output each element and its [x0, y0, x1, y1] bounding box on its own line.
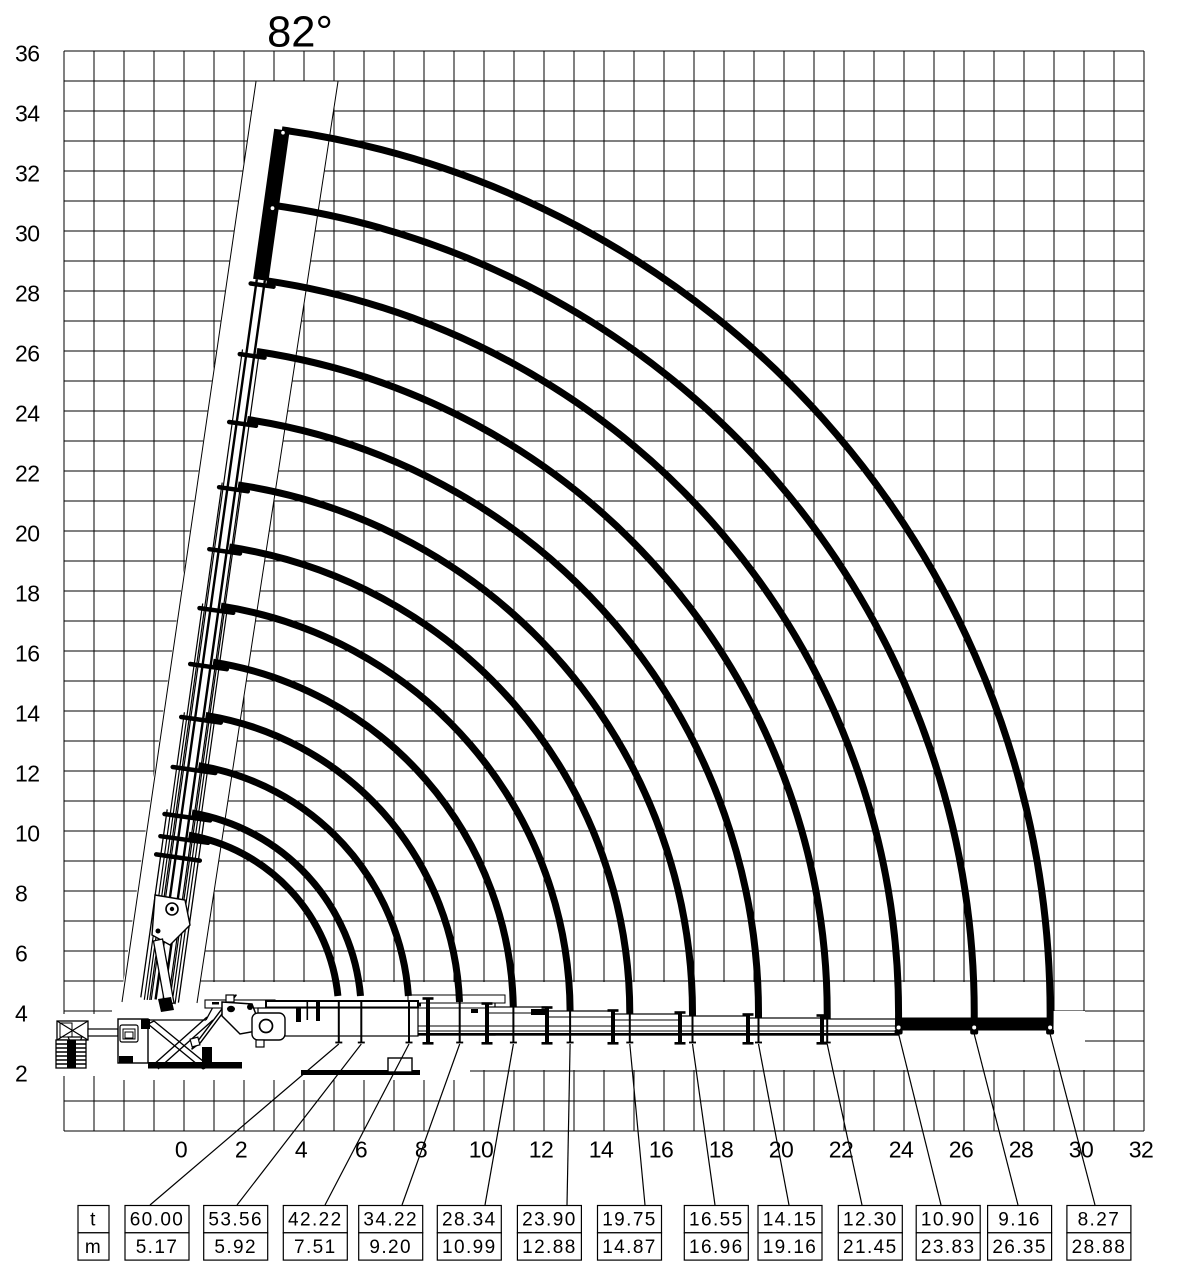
svg-text:26: 26 — [949, 1137, 974, 1163]
svg-text:6: 6 — [15, 941, 27, 967]
svg-text:8: 8 — [415, 1137, 427, 1163]
svg-text:0: 0 — [175, 1137, 187, 1163]
svg-text:16: 16 — [15, 641, 40, 667]
svg-text:5.92: 5.92 — [214, 1237, 257, 1258]
svg-text:10.99: 10.99 — [442, 1237, 497, 1258]
svg-text:12: 12 — [529, 1137, 554, 1163]
svg-text:24: 24 — [889, 1137, 914, 1163]
svg-text:16: 16 — [649, 1137, 674, 1163]
svg-text:8: 8 — [15, 881, 27, 907]
svg-text:12: 12 — [15, 761, 40, 787]
svg-text:14.87: 14.87 — [602, 1237, 657, 1258]
svg-text:8.27: 8.27 — [1078, 1210, 1121, 1231]
svg-text:28: 28 — [1009, 1137, 1034, 1163]
svg-text:26: 26 — [15, 341, 40, 367]
svg-text:20: 20 — [769, 1137, 794, 1163]
svg-text:m: m — [85, 1237, 102, 1258]
svg-text:9.20: 9.20 — [369, 1237, 412, 1258]
svg-text:14: 14 — [15, 701, 40, 727]
svg-text:14.15: 14.15 — [763, 1210, 818, 1231]
svg-text:18: 18 — [709, 1137, 734, 1163]
svg-text:30: 30 — [15, 221, 40, 247]
svg-text:10: 10 — [469, 1137, 494, 1163]
svg-text:34: 34 — [15, 101, 40, 127]
svg-text:4: 4 — [295, 1137, 308, 1163]
svg-text:9.16: 9.16 — [998, 1210, 1041, 1231]
svg-text:12.30: 12.30 — [843, 1210, 898, 1231]
svg-text:10.90: 10.90 — [921, 1210, 976, 1231]
svg-text:19.16: 19.16 — [763, 1237, 818, 1258]
svg-text:28.88: 28.88 — [1072, 1237, 1127, 1258]
svg-text:16.96: 16.96 — [689, 1237, 744, 1258]
svg-text:23.83: 23.83 — [921, 1237, 976, 1258]
svg-text:16.55: 16.55 — [689, 1210, 744, 1231]
svg-text:82°: 82° — [267, 9, 333, 57]
svg-text:24: 24 — [15, 401, 40, 427]
svg-text:12.88: 12.88 — [522, 1237, 577, 1258]
svg-text:34.22: 34.22 — [363, 1210, 418, 1231]
svg-text:53.56: 53.56 — [208, 1210, 263, 1231]
svg-text:42.22: 42.22 — [288, 1210, 343, 1231]
svg-text:26.35: 26.35 — [992, 1237, 1047, 1258]
svg-text:4: 4 — [15, 1001, 28, 1027]
svg-text:60.00: 60.00 — [130, 1210, 185, 1231]
svg-text:2: 2 — [15, 1061, 27, 1087]
svg-text:19.75: 19.75 — [602, 1210, 657, 1231]
svg-text:10: 10 — [15, 821, 40, 847]
svg-text:30: 30 — [1069, 1137, 1094, 1163]
svg-text:36: 36 — [15, 41, 40, 67]
svg-text:28: 28 — [15, 281, 40, 307]
svg-text:18: 18 — [15, 581, 40, 607]
svg-text:6: 6 — [355, 1137, 367, 1163]
svg-text:7.51: 7.51 — [294, 1237, 337, 1258]
svg-text:32: 32 — [15, 161, 40, 187]
svg-text:2: 2 — [235, 1137, 247, 1163]
svg-text:23.90: 23.90 — [522, 1210, 577, 1231]
svg-text:22: 22 — [15, 461, 40, 487]
svg-text:28.34: 28.34 — [442, 1210, 497, 1231]
svg-text:5.17: 5.17 — [136, 1237, 179, 1258]
svg-text:21.45: 21.45 — [843, 1237, 898, 1258]
svg-text:32: 32 — [1129, 1137, 1154, 1163]
svg-text:20: 20 — [15, 521, 40, 547]
svg-text:22: 22 — [829, 1137, 854, 1163]
svg-text:14: 14 — [589, 1137, 614, 1163]
svg-text:t: t — [90, 1210, 97, 1231]
